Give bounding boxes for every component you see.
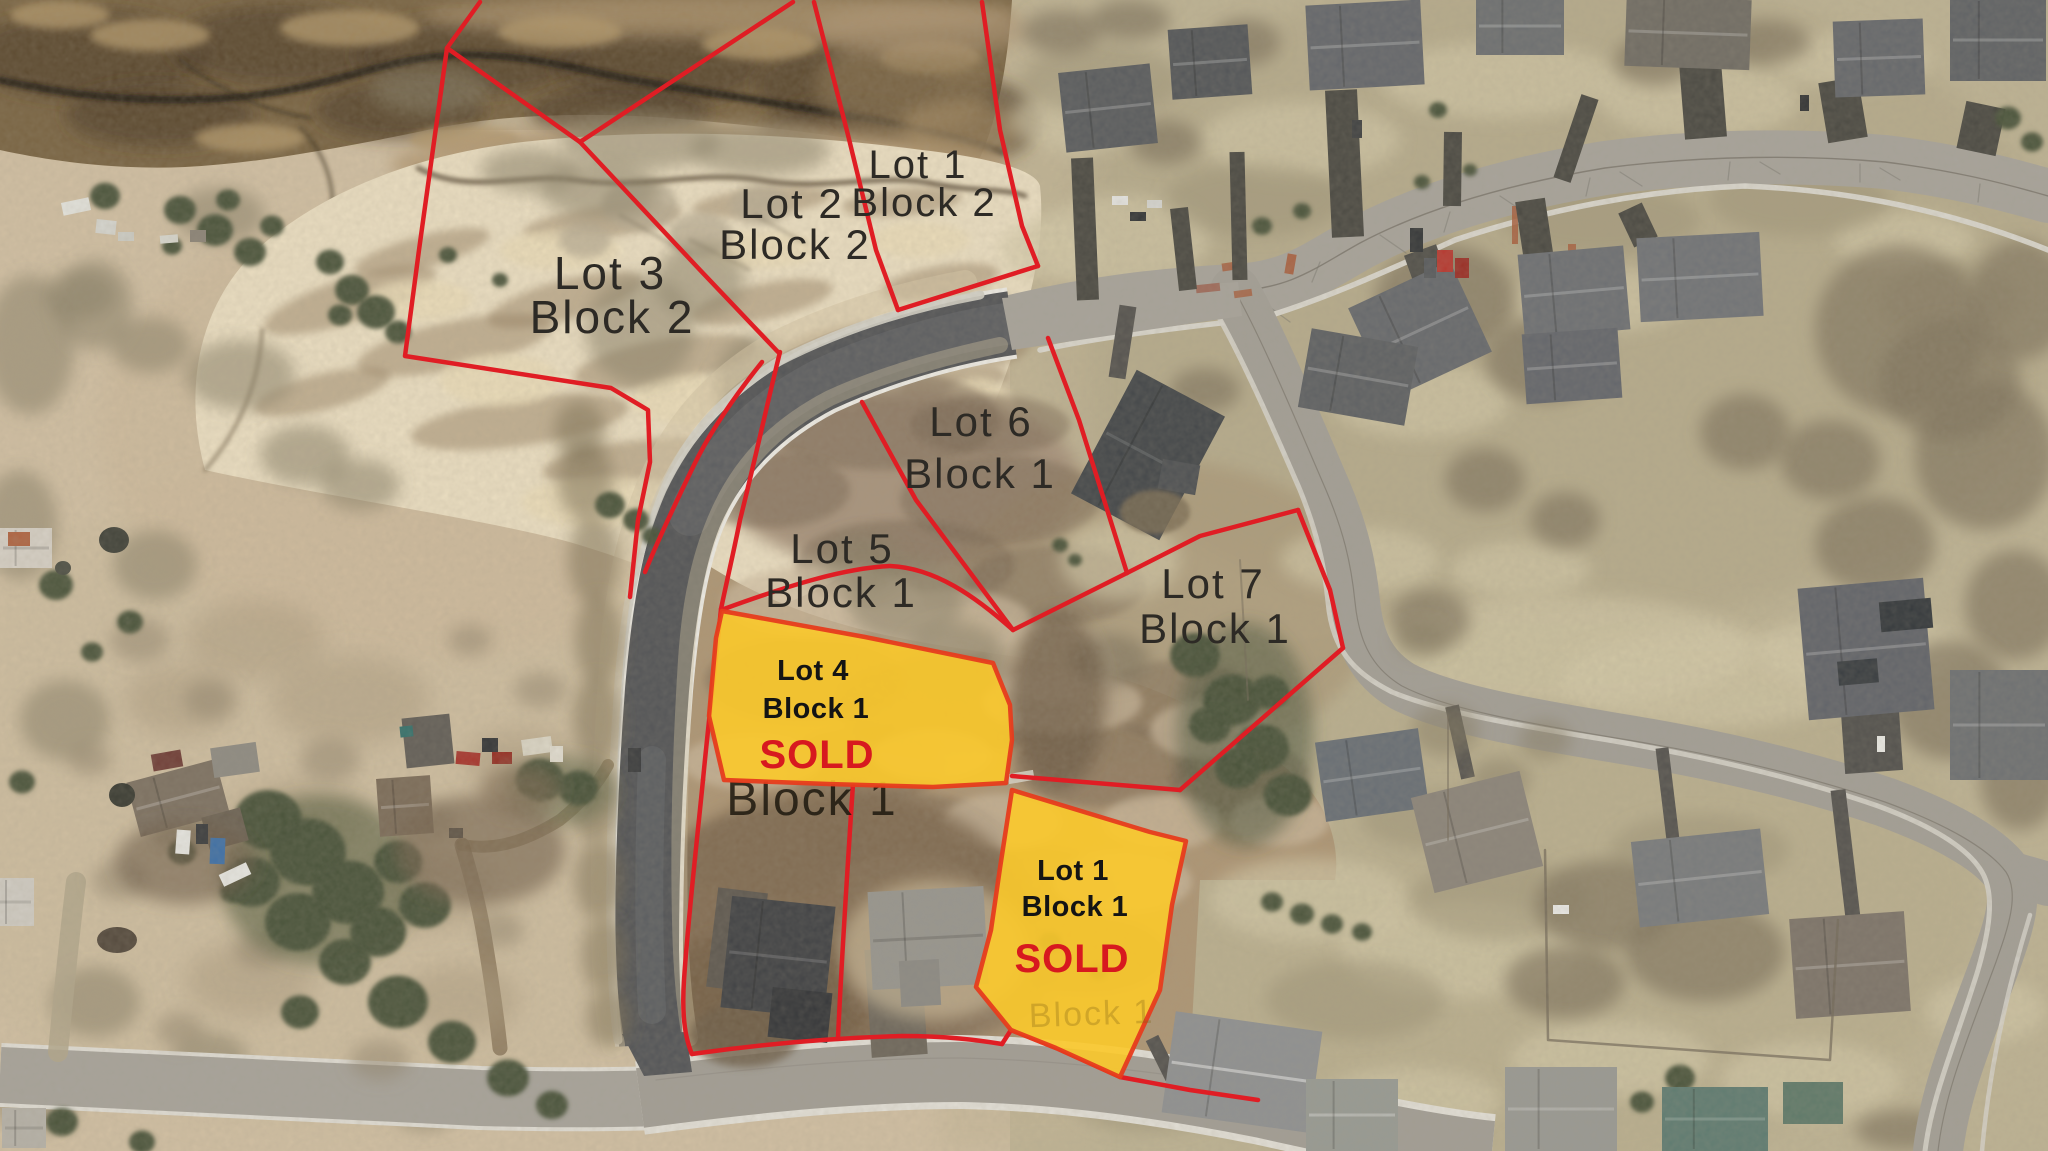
svg-text:Block 1: Block 1 bbox=[1022, 891, 1129, 923]
svg-text:SOLD: SOLD bbox=[759, 733, 874, 777]
svg-text:Block 2: Block 2 bbox=[851, 181, 996, 225]
svg-text:Lot 1: Lot 1 bbox=[1037, 855, 1109, 887]
svg-text:Block 2: Block 2 bbox=[530, 291, 695, 343]
svg-text:Block 1: Block 1 bbox=[1139, 605, 1291, 652]
svg-text:Lot 2: Lot 2 bbox=[740, 180, 843, 227]
svg-text:Block 1: Block 1 bbox=[763, 693, 870, 725]
svg-text:Block 2: Block 2 bbox=[719, 221, 871, 268]
svg-text:Lot 7: Lot 7 bbox=[1161, 560, 1264, 607]
svg-text:SOLD: SOLD bbox=[1014, 937, 1129, 981]
svg-text:Block 1: Block 1 bbox=[765, 569, 917, 616]
svg-text:Block 1: Block 1 bbox=[1028, 993, 1155, 1035]
svg-text:Block 1: Block 1 bbox=[904, 450, 1056, 497]
svg-text:Lot 4: Lot 4 bbox=[777, 655, 849, 687]
svg-text:Lot 6: Lot 6 bbox=[929, 398, 1032, 445]
svg-text:Lot 5: Lot 5 bbox=[790, 525, 893, 572]
